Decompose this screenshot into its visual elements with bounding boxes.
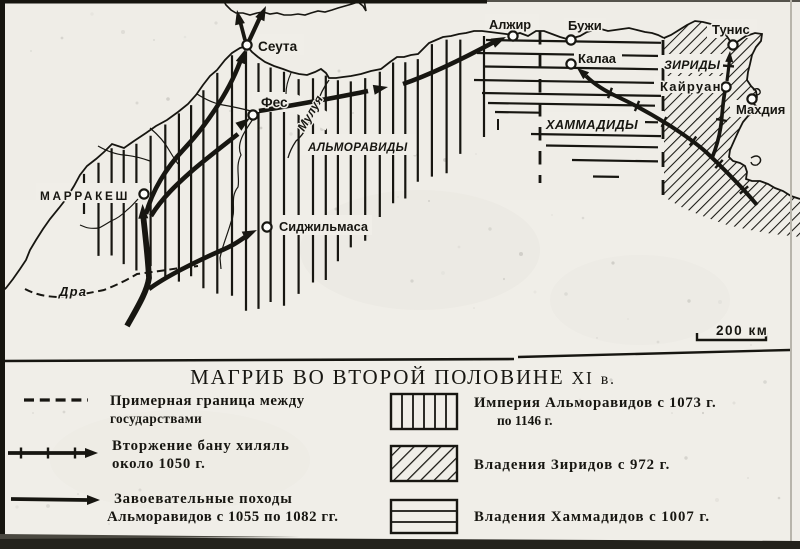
svg-text:Сиджильмаса: Сиджильмаса — [279, 219, 369, 234]
svg-text:ХАММАДИДЫ: ХАММАДИДЫ — [545, 118, 638, 132]
svg-text:Махдия: Махдия — [736, 102, 785, 117]
svg-text:Фес: Фес — [261, 95, 288, 110]
svg-text:Калаа: Калаа — [578, 51, 617, 66]
svg-text:Владения Зиридов с 972 г.: Владения Зиридов с 972 г. — [474, 457, 670, 473]
svg-text:Примерная граница между: Примерная граница между — [110, 393, 305, 409]
svg-text:Завоевательные походы: Завоевательные походы — [114, 491, 293, 507]
svg-text:Алжир: Алжир — [489, 17, 531, 32]
svg-text:ЗИРИДЫ: ЗИРИДЫ — [664, 58, 721, 72]
svg-text:государствами: государствами — [110, 411, 202, 426]
svg-text:Сеута: Сеута — [258, 39, 298, 54]
svg-text:Вторжение бану хиляль: Вторжение бану хиляль — [112, 438, 290, 454]
svg-text:около 1050 г.: около 1050 г. — [112, 456, 205, 472]
svg-text:МАГРИБ ВО ВТОРОЙ ПОЛОВИНЕ XI в: МАГРИБ ВО ВТОРОЙ ПОЛОВИНЕ XI в. — [190, 365, 616, 389]
svg-text:Кайруан: Кайруан — [660, 79, 722, 94]
svg-text:по 1146 г.: по 1146 г. — [497, 413, 553, 428]
svg-text:МАРРАКЕШ: МАРРАКЕШ — [40, 189, 130, 203]
svg-text:Империя Альморавидов с 1073: Империя Альморавидов с 1073 г. — [474, 395, 716, 411]
svg-text:Владения Хаммадидов с 1007: Владения Хаммадидов с 1007 г. — [474, 509, 710, 525]
svg-text:АЛЬМОРАВИДЫ: АЛЬМОРАВИДЫ — [307, 141, 408, 154]
svg-text:Тунис: Тунис — [712, 22, 750, 37]
svg-text:200 км: 200 км — [716, 323, 768, 338]
svg-text:Дра: Дра — [58, 284, 87, 299]
svg-text:Альморавидов с 1055 по 1082 гг: Альморавидов с 1055 по 1082 гг. — [107, 509, 338, 525]
svg-text:Бужи: Бужи — [568, 18, 602, 33]
